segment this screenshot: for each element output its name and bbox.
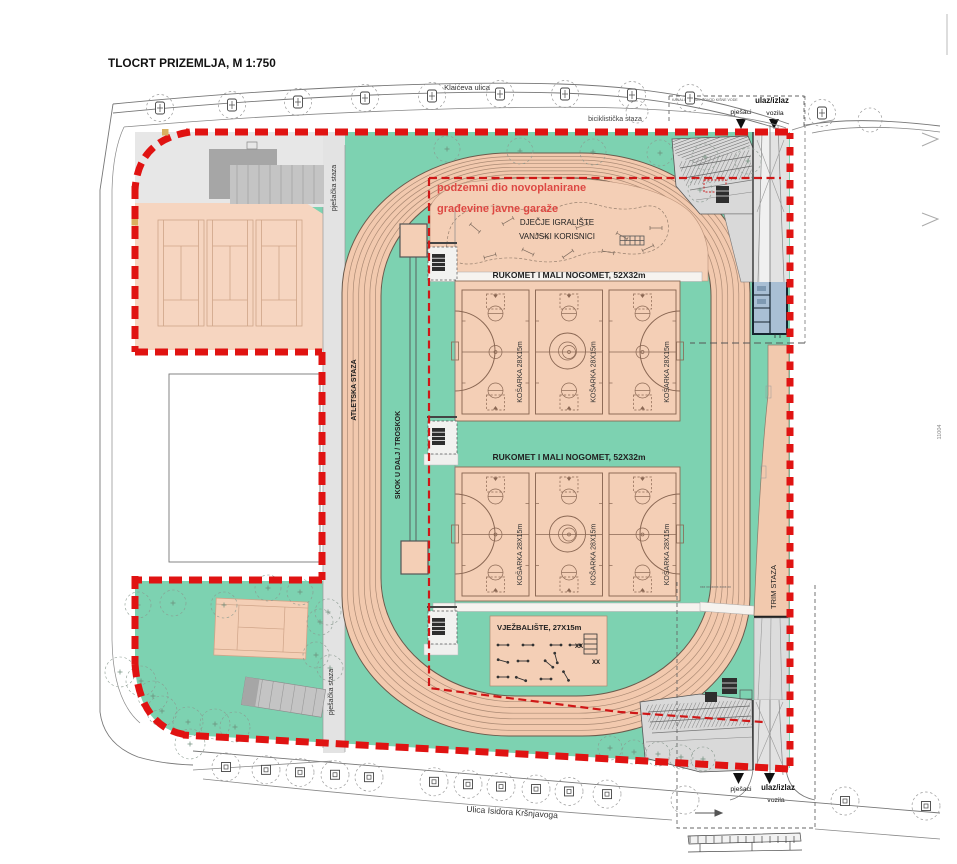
svg-text:pješačka staza: pješačka staza [331,165,338,211]
svg-text:KOŠARKA 28X15m: KOŠARKA 28X15m [515,524,524,586]
svg-text:VJEŽBALIŠTE, 27X15m: VJEŽBALIŠTE, 27X15m [497,623,582,632]
svg-text:xxx xxxxxxx xxxx xx: xxx xxxxxxx xxxx xx [700,585,731,589]
svg-text:podzemni dio novoplanirane: podzemni dio novoplanirane [437,182,586,194]
svg-text:RUKOMET I MALI NOGOMET, 52X32m: RUKOMET I MALI NOGOMET, 52X32m [492,270,645,280]
svg-text:KOŠARKA 28X15m: KOŠARKA 28X15m [589,524,598,586]
svg-text:SKOK U DALJ / TROSKOK: SKOK U DALJ / TROSKOK [395,411,402,499]
svg-text:TRIM STAZA: TRIM STAZA [769,565,778,609]
svg-text:XX: XX [592,660,600,666]
svg-text:Klaićeva ulica: Klaićeva ulica [444,83,491,92]
svg-text:ulaz/izlaz: ulaz/izlaz [761,783,795,792]
svg-text:KOŠARKA 28X15m: KOŠARKA 28X15m [589,341,598,403]
svg-text:KOŠARKA 28X15m: KOŠARKA 28X15m [515,341,524,403]
svg-text:DJEČJE IGRALIŠTE: DJEČJE IGRALIŠTE [520,218,594,227]
svg-text:ulaz/izlaz: ulaz/izlaz [755,96,789,105]
svg-text:vozila: vozila [767,797,785,804]
svg-text:pješaci: pješaci [730,109,752,116]
svg-text:građevine javne garaže: građevine javne garaže [437,203,558,215]
svg-text:11004: 11004 [937,425,943,440]
svg-text:RUKOMET I MALI NOGOMET, 52X32m: RUKOMET I MALI NOGOMET, 52X32m [492,452,645,462]
svg-text:vozila: vozila [766,110,784,117]
svg-text:pješaci: pješaci [730,786,752,793]
svg-text:ATLETSKA STAZA: ATLETSKA STAZA [351,359,358,420]
svg-text:XX: XX [575,644,583,650]
svg-text:pješačka staza: pješačka staza [328,669,335,715]
svg-text:KOŠARKA 28X15m: KOŠARKA 28X15m [662,341,671,403]
svg-text:VANJSKI KORISNICI: VANJSKI KORISNICI [519,232,595,241]
svg-text:biciklistička staza: biciklistička staza [588,116,642,123]
svg-text:KOŠARKA 28X15m: KOŠARKA 28X15m [662,524,671,586]
svg-text:KANALIZACIJSKI ODVOD KIŠNE VOD: KANALIZACIJSKI ODVOD KIŠNE VODE [672,97,738,102]
svg-text:TLOCRT PRIZEMLJA, M 1:750: TLOCRT PRIZEMLJA, M 1:750 [108,56,276,70]
